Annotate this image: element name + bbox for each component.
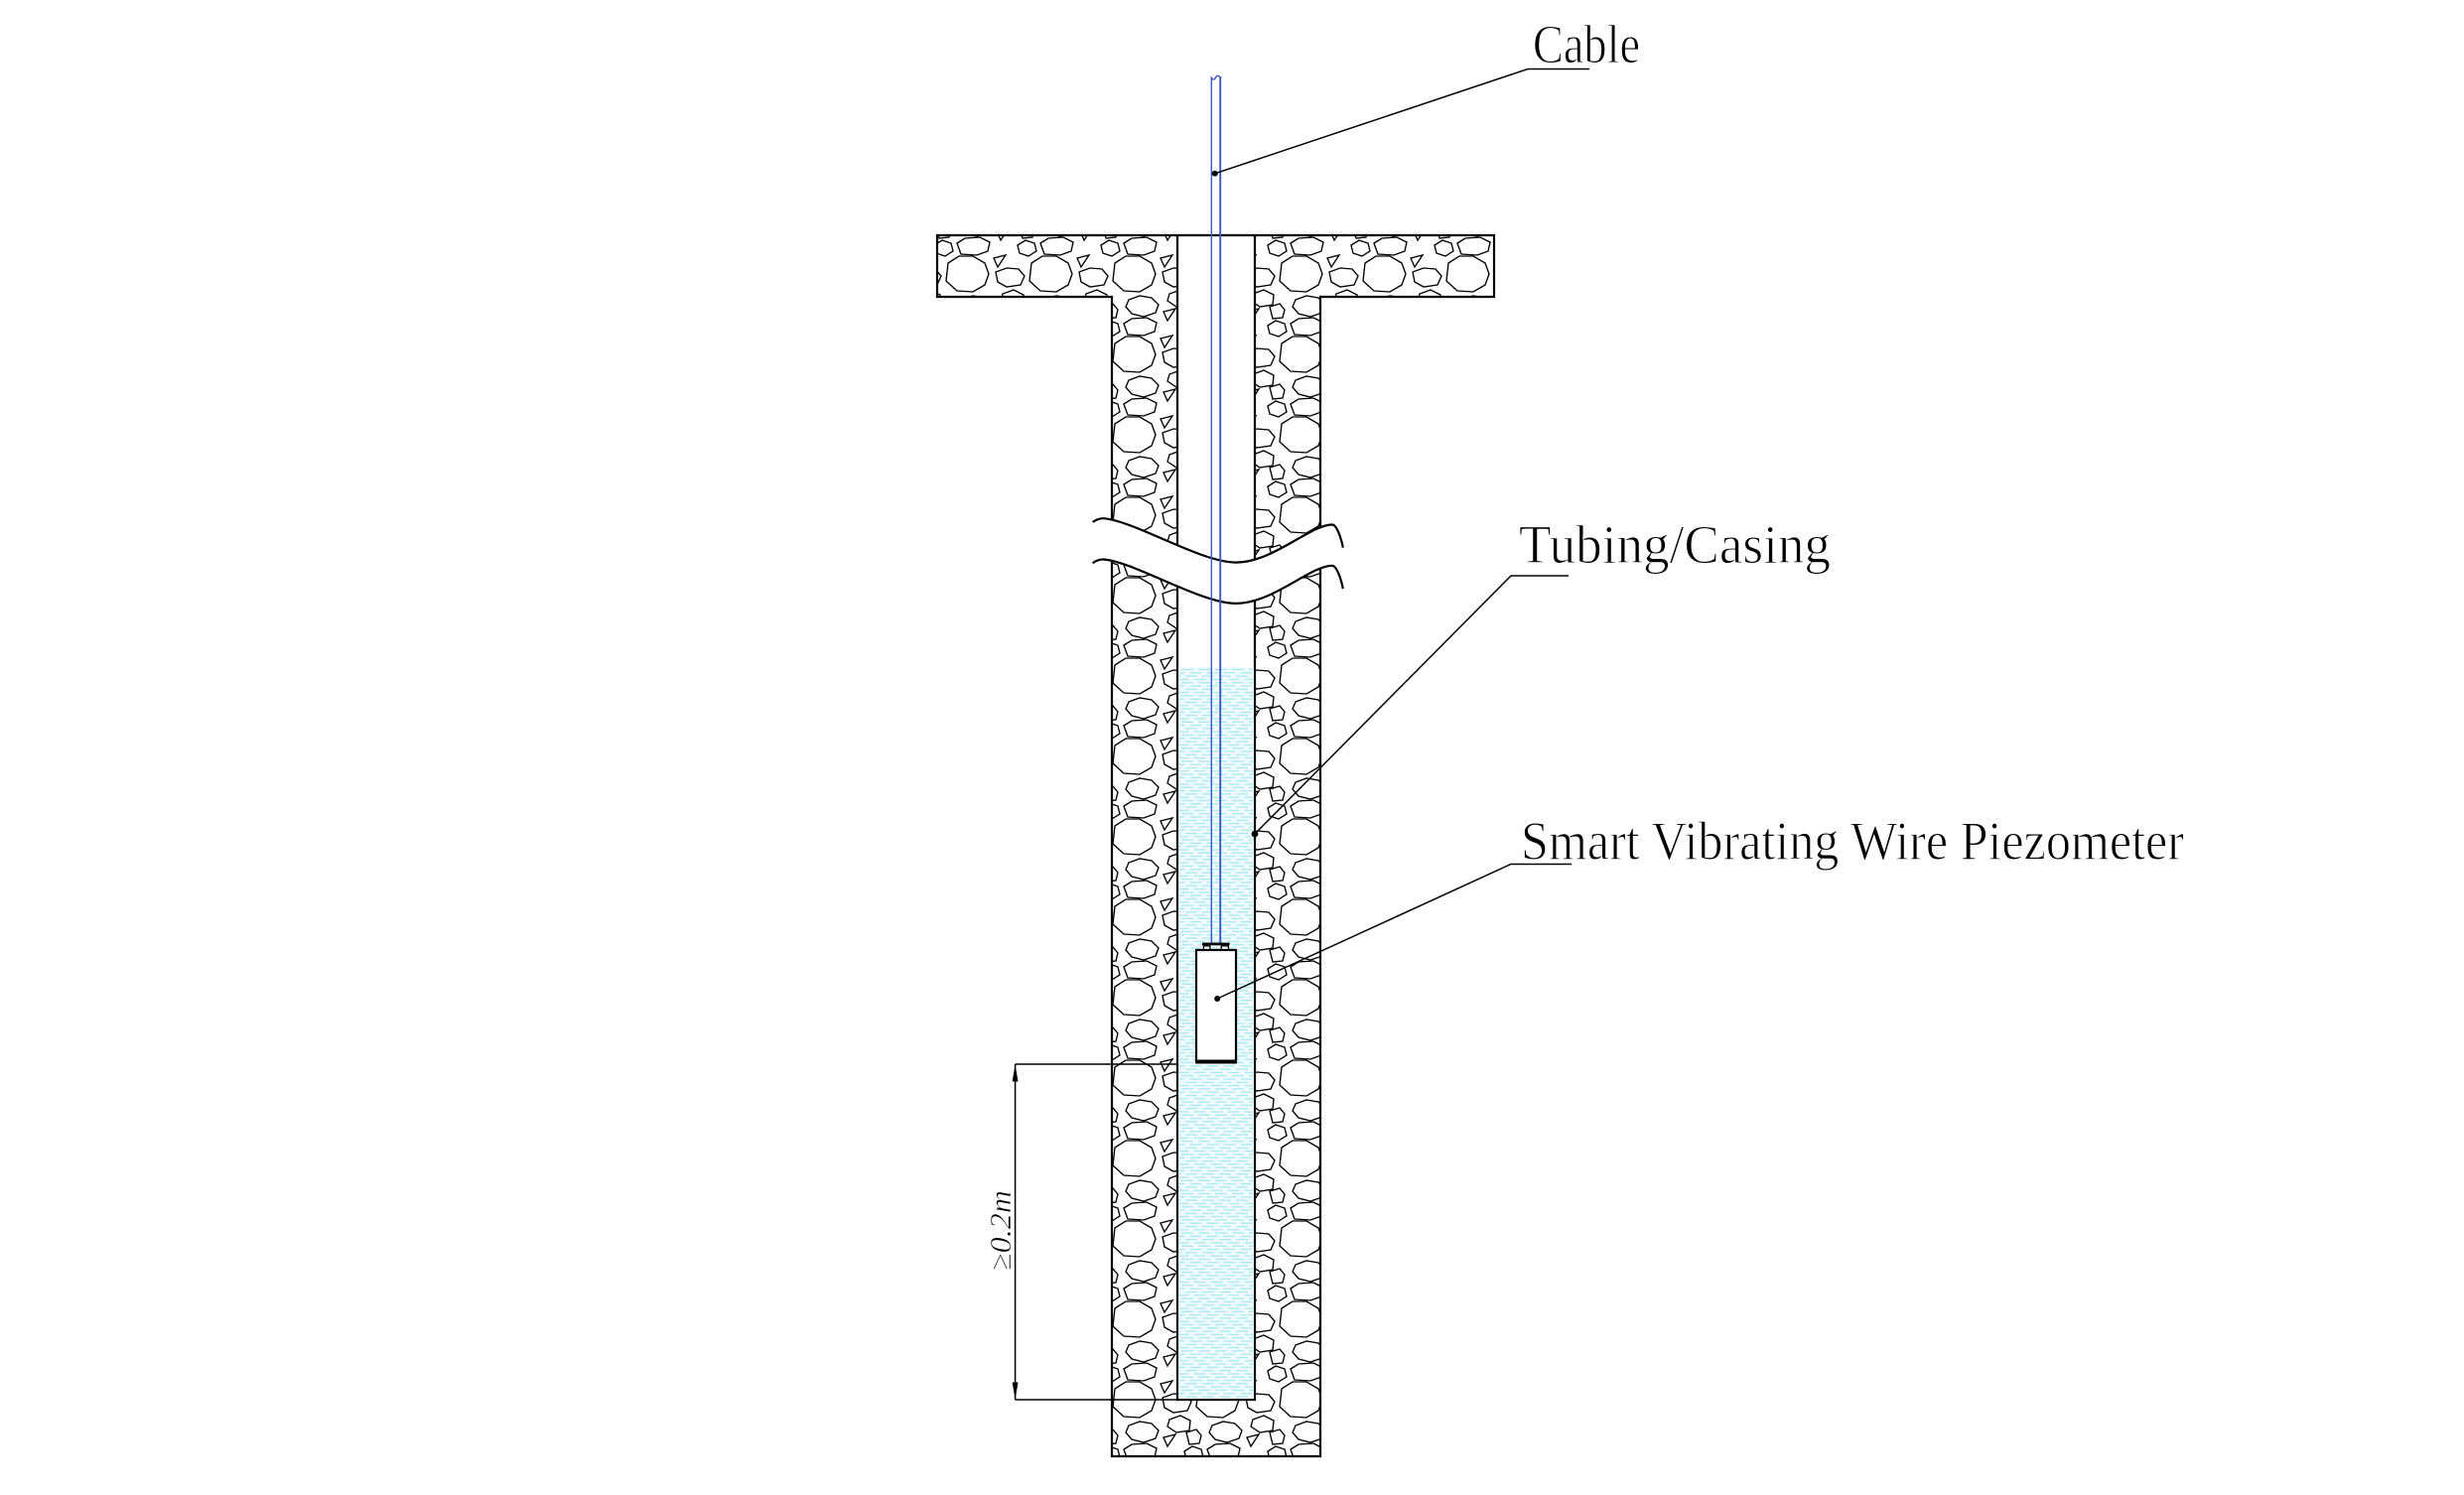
svg-text:Cable: Cable: [1533, 14, 1640, 74]
svg-text:≥0.2m: ≥0.2m: [983, 1190, 1018, 1271]
svg-text:Tubing/Casing: Tubing/Casing: [1519, 514, 1831, 575]
svg-text:Smart Vibrating Wire Piezomete: Smart Vibrating Wire Piezometer: [1521, 811, 2184, 872]
